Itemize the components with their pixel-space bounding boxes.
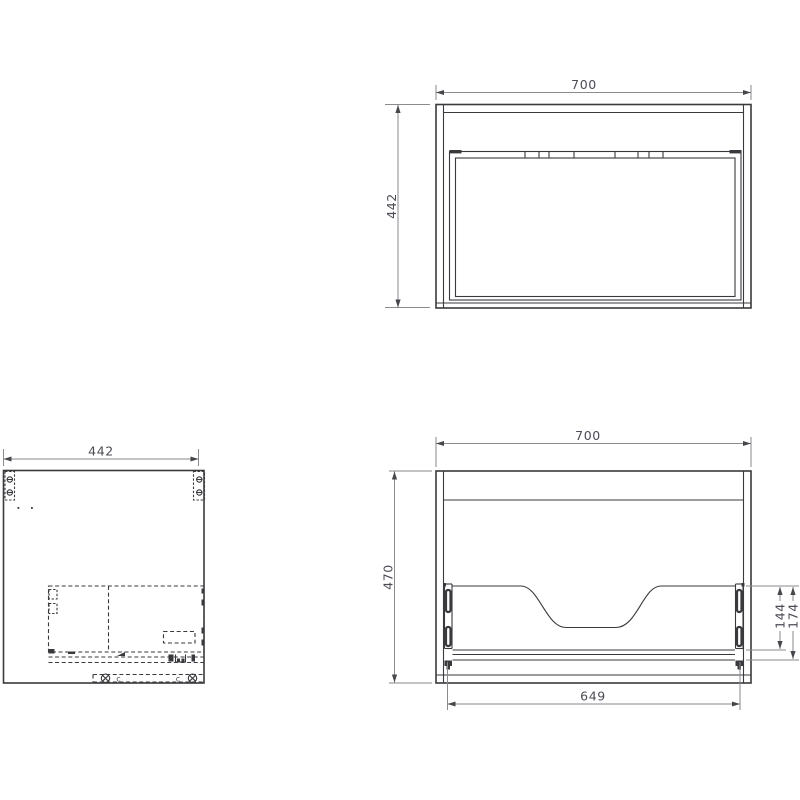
technical-drawing-canvas: 700 442 — [0, 0, 800, 800]
hidden-drawer-outline — [49, 586, 205, 652]
cabinet-outline-top — [436, 105, 751, 309]
cabinet-drawing: 700 442 — [0, 0, 800, 800]
cabinet-outline-rear — [436, 471, 751, 683]
rail-height-value: 174 — [786, 603, 800, 629]
side-depth-dimension: 442 — [4, 444, 199, 467]
side-panel-outline — [4, 471, 205, 684]
plan-view: 700 442 — [384, 77, 751, 308]
fitting-marker-c-right: c — [176, 675, 180, 684]
side-view: 442 — [4, 444, 205, 684]
drawer-front-joint-ticks — [525, 152, 663, 159]
rear-height-dimension: 470 — [381, 471, 433, 683]
rear-width-value: 700 — [575, 428, 601, 443]
inner-width-value: 649 — [580, 689, 606, 704]
slide-foot-right — [736, 661, 744, 667]
hidden-bottom-fitting: c c — [93, 674, 204, 683]
inner-width-dimension: 649 — [448, 662, 741, 710]
hidden-fitting-box — [164, 632, 196, 644]
plan-depth-dimension: 442 — [384, 105, 430, 308]
plan-depth-value: 442 — [384, 193, 399, 219]
plan-width-dimension: 700 — [436, 77, 751, 100]
slide-bracket-mark-right — [730, 150, 742, 153]
cam-lock-icon — [188, 674, 196, 682]
slide-foot-left — [445, 661, 453, 667]
wall-screw-positions-left — [5, 472, 15, 501]
hidden-slide-rail — [49, 649, 205, 663]
drawer-slide-left — [443, 583, 452, 670]
rear-height-value: 470 — [381, 564, 396, 590]
slide-bracket-mark-left — [450, 150, 462, 153]
fitting-marker-c-left: c — [116, 675, 120, 684]
rear-width-dimension: 700 — [436, 428, 751, 467]
plan-width-value: 700 — [571, 77, 597, 92]
pilot-hole-dot — [18, 507, 20, 509]
cam-lock-icon — [101, 674, 109, 682]
side-depth-value: 442 — [88, 444, 114, 459]
pilot-hole-dot — [31, 507, 33, 509]
drawer-outline-top — [450, 152, 742, 301]
rear-view: 700 470 — [381, 428, 800, 710]
wall-screw-positions-right — [194, 472, 205, 501]
drawer-back-panel-cutout — [453, 586, 736, 628]
